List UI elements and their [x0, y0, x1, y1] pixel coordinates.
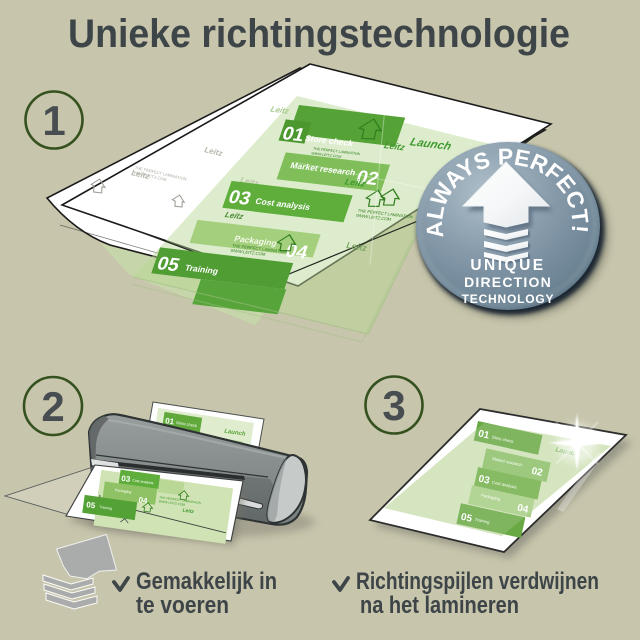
svg-text:na het lamineren: na het lamineren: [360, 592, 519, 619]
svg-text:03: 03: [121, 474, 132, 484]
svg-text:05: 05: [86, 500, 97, 510]
svg-text:te voeren: te voeren: [136, 592, 229, 619]
svg-text:1: 1: [42, 97, 65, 144]
svg-text:DIRECTION: DIRECTION: [464, 274, 552, 290]
svg-text:UNIQUE: UNIQUE: [470, 257, 545, 274]
svg-text:2: 2: [41, 383, 64, 430]
svg-text:3: 3: [382, 382, 405, 429]
svg-text:TECHNOLOGY: TECHNOLOGY: [462, 292, 555, 306]
svg-text:Richtingspijlen verdwijnen: Richtingspijlen verdwijnen: [356, 568, 599, 595]
svg-text:Unieke richtingstechnologie: Unieke richtingstechnologie: [68, 12, 570, 56]
svg-text:Gemakkelijk in: Gemakkelijk in: [136, 568, 277, 595]
